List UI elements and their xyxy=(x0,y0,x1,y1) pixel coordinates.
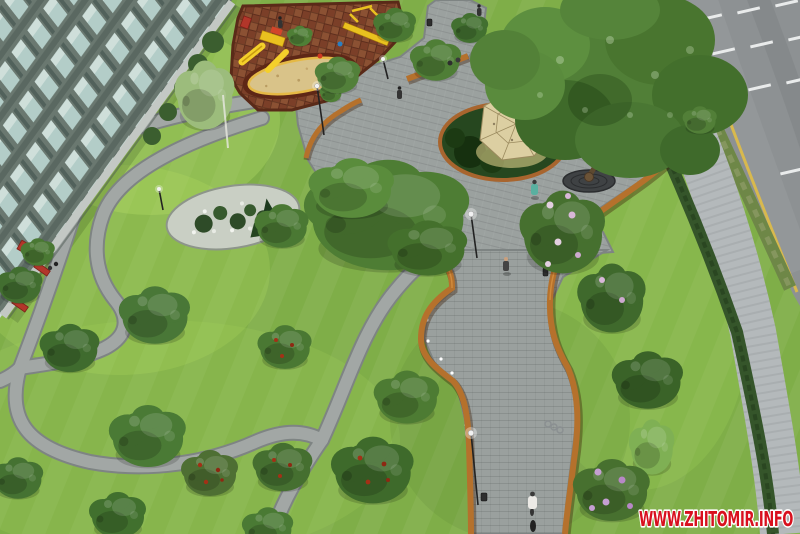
person-on-red-bench xyxy=(48,266,52,270)
park-aerial-render: WWW.ZHITOMIR.INFO xyxy=(0,0,800,534)
person-sitting xyxy=(448,61,453,66)
render-canvas: WWW.ZHITOMIR.INFO xyxy=(0,0,800,534)
person-on-red-bench-2 xyxy=(54,262,58,266)
spring-rider xyxy=(318,54,323,59)
watermark-text: WWW.ZHITOMIR.INFO xyxy=(639,507,793,531)
person-sitting-2 xyxy=(456,58,461,63)
spring-rider-2 xyxy=(338,42,343,47)
person-plaza xyxy=(397,86,402,99)
